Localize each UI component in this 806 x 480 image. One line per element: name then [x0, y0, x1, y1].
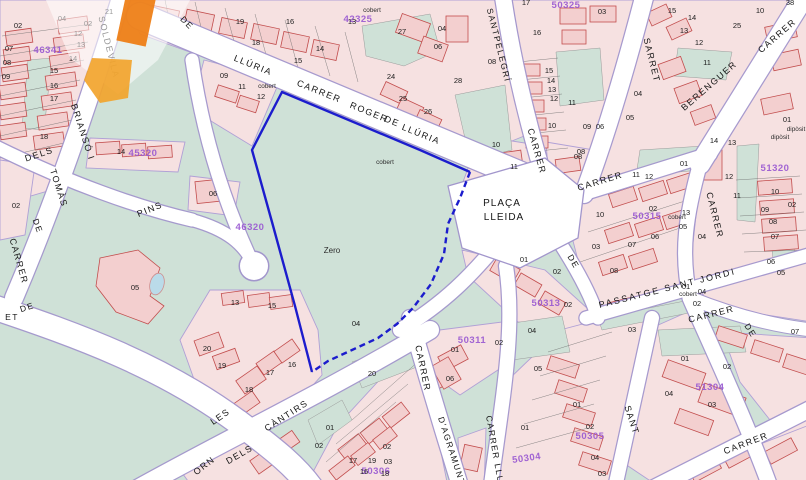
parcel-number: 03 [592, 242, 600, 251]
parcel-number: 18 [252, 38, 260, 47]
parcel-number: 04 [698, 287, 706, 296]
parcel-number: 02 [564, 300, 572, 309]
block-code: 50315 [633, 211, 662, 222]
parcel-number: 13 [680, 26, 688, 35]
parcel-number: 08 [769, 217, 777, 226]
annotation-label: cobert [376, 159, 394, 166]
parcel-number: 24 [387, 72, 395, 81]
parcel-number: 15 [268, 301, 276, 310]
parcel-number: 05 [131, 283, 139, 292]
parcel-number: 05 [534, 364, 542, 373]
block-code: 46341 [34, 45, 63, 56]
parcel-number: 03 [628, 325, 636, 334]
parcel-number: 13 [548, 85, 556, 94]
parcel-number: 20 [368, 369, 376, 378]
parcel-number: 11 [703, 58, 711, 67]
parcel-number: 16 [360, 467, 368, 476]
parcel-number: 07 [791, 327, 799, 336]
parcel-number: 09 [220, 71, 228, 80]
parcel-number: 27 [398, 27, 406, 36]
parcel-number: 01 [681, 354, 689, 363]
parcel-number: 06 [596, 122, 604, 131]
parcel-number: 17 [349, 456, 357, 465]
block-code: 50305 [576, 431, 605, 442]
parcel-number: 01 [573, 400, 581, 409]
parcel-number: 11 [632, 170, 640, 179]
cadastral-map[interactable]: LLÚRIACARRERROGERDELLÚRIASANTPELEGRÍCARR… [0, 0, 806, 480]
parcel-number: 04 [438, 24, 446, 33]
parcel-number: 01 [783, 115, 791, 124]
parcel-number: 28 [454, 76, 462, 85]
parcel-number: 12 [645, 172, 653, 181]
parcel-number: 16 [286, 17, 294, 26]
parcel-number: 14 [117, 147, 125, 156]
parcel-number: 12 [257, 92, 265, 101]
annotation-label: cobert [679, 291, 697, 298]
parcel-number: 18 [381, 469, 389, 478]
annotation-label: dipòsit [787, 126, 806, 133]
map-viewport[interactable]: LLÚRIACARRERROGERDELLÚRIASANTPELEGRÍCARR… [0, 0, 806, 480]
block-code: 51320 [761, 163, 790, 174]
parcel-number: 03 [598, 469, 606, 478]
parcel-number: 03 [384, 457, 392, 466]
parcel-number: 17 [522, 0, 530, 7]
parcel-number: 04 [634, 89, 642, 98]
parcel-number: 25 [733, 21, 741, 30]
parcel-number: 07 [771, 232, 779, 241]
parcel-number: 04 [665, 389, 673, 398]
parcel-number: 16 [50, 81, 58, 90]
parcel-number: 10 [548, 121, 556, 130]
parcel-number: 01 [326, 423, 334, 432]
parcel-number: 14 [688, 13, 696, 22]
parcel-number: 01 [682, 282, 690, 291]
block-code: 50325 [552, 0, 581, 11]
parcel-number: 07 [628, 240, 636, 249]
parcel-number: 09 [583, 122, 591, 131]
parcel-number: 19 [236, 17, 244, 26]
parcel-number: 06 [434, 42, 442, 51]
parcel-number: 08 [574, 152, 582, 161]
parcel-number: 11 [510, 162, 518, 171]
parcel-number: 04 [591, 453, 599, 462]
parcel-number: 04 [352, 319, 360, 328]
parcel-number: 08 [488, 57, 496, 66]
parcel-number: 15 [545, 66, 553, 75]
parcel-number: 06 [209, 189, 217, 198]
parcel-number: 04 [698, 232, 706, 241]
parcel-number: 13 [231, 298, 239, 307]
parcel-number: 02 [693, 299, 701, 308]
street-label: LLEIDA [484, 212, 524, 223]
parcel-number: 02 [383, 442, 391, 451]
parcel-number: 14 [547, 76, 555, 85]
parcel-number: 07 [5, 44, 13, 53]
parcel-number: 10 [492, 140, 500, 149]
parcel-number: 08 [3, 58, 11, 67]
parcel-number: 11 [568, 98, 576, 107]
parcel-number: 06 [767, 257, 775, 266]
parcel-number: 14 [316, 44, 324, 53]
parcel-number: 14 [710, 136, 718, 145]
block-code: 46320 [236, 222, 265, 233]
parcel-number: 17 [50, 94, 58, 103]
parcel-number: 02 [553, 267, 561, 276]
parcel-number: 02 [14, 21, 22, 30]
street-label: ET [5, 312, 19, 322]
parcel-number: 02 [723, 362, 731, 371]
parcel-number: 26 [424, 107, 432, 116]
parcel-number: 10 [756, 6, 764, 15]
parcel-number: 05 [626, 113, 634, 122]
parcel-number: 13 [348, 17, 356, 26]
parcel-number: 10 [771, 187, 779, 196]
parcel-number: 02 [12, 201, 20, 210]
parcel-number: 15 [668, 6, 676, 15]
parcel-number: 01 [451, 345, 459, 354]
annotation-label: dipòsit [771, 134, 790, 141]
parcel-number: 15 [294, 56, 302, 65]
parcel-number: 01 [680, 159, 688, 168]
block-code: 50313 [532, 298, 561, 309]
parcel-number: 13 [728, 138, 736, 147]
parcel-number: 11 [238, 82, 246, 91]
parcel-number: 10 [596, 210, 604, 219]
block-code: 51304 [696, 382, 725, 393]
parcel-number: 06 [651, 232, 659, 241]
parcel-number: 08 [610, 266, 618, 275]
parcel-number: 38 [786, 0, 794, 7]
parcel-number: 02 [495, 338, 503, 347]
parcel-number: 09 [761, 205, 769, 214]
parcel-number: 02 [788, 200, 796, 209]
parcel-number: 03 [708, 400, 716, 409]
parcel-number: 05 [679, 222, 687, 231]
block-code: 50311 [458, 335, 487, 346]
cul-de-sac-surface [240, 252, 268, 280]
parcel-number: 18 [245, 385, 253, 394]
annotation-label: cobert [668, 214, 686, 221]
parcel-number: 12 [695, 38, 703, 47]
parcel-number: 16 [288, 360, 296, 369]
parcel-number: 20 [203, 344, 211, 353]
parcel-number: 09 [2, 72, 10, 81]
street-label: PLAÇA [483, 198, 521, 209]
annotation-label: Zero [324, 246, 341, 255]
parcel-number: 18 [40, 132, 48, 141]
parcel-number: 04 [528, 326, 536, 335]
parcel-number: 19 [218, 361, 226, 370]
parcel-number: 03 [598, 7, 606, 16]
annotation-label: cobert [258, 83, 276, 90]
parcel-number: 11 [733, 191, 741, 200]
parcel-number: 12 [725, 172, 733, 181]
parcel-number: 02 [649, 204, 657, 213]
parcel-number: 12 [550, 94, 558, 103]
annotation-label: cobert [363, 7, 381, 14]
parcel-number: 05 [777, 268, 785, 277]
parcel-number: 15 [50, 66, 58, 75]
parcel-number: 16 [533, 28, 541, 37]
parcel-number: 01 [520, 255, 528, 264]
parcel-number: 19 [368, 456, 376, 465]
parcel-number: 02 [315, 441, 323, 450]
block-code: 45320 [129, 148, 158, 159]
parcel-number: 25 [399, 94, 407, 103]
parcel-number: 02 [586, 422, 594, 431]
parcel-number: 01 [521, 423, 529, 432]
parcel-number: 17 [266, 368, 274, 377]
parcel-number: 06 [446, 374, 454, 383]
